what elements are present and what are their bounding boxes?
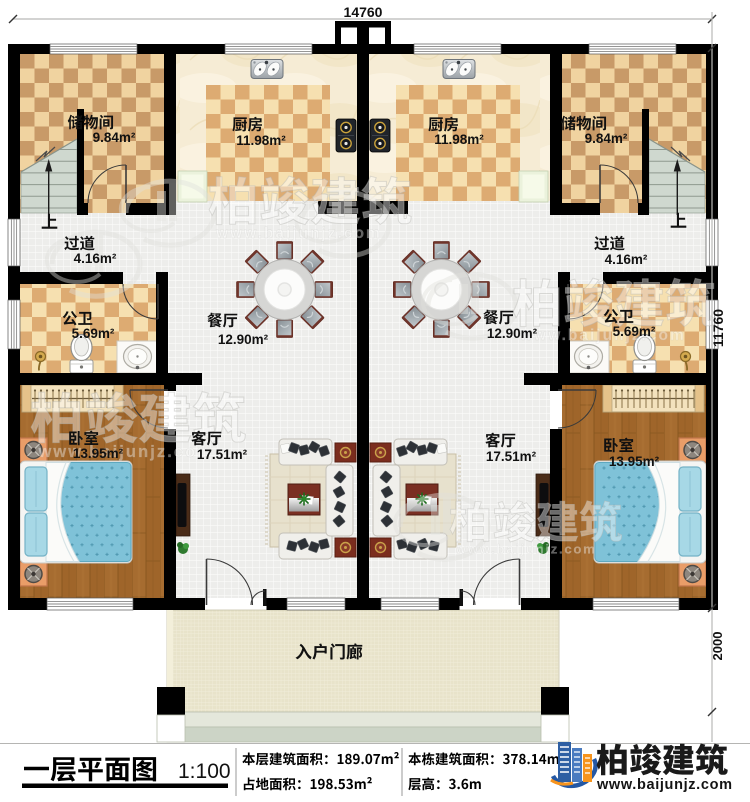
svg-text:4.16m²: 4.16m²: [605, 252, 648, 267]
svg-text:17.51m²: 17.51m²: [197, 447, 248, 462]
svg-text:13.95m²: 13.95m²: [609, 454, 660, 469]
svg-text:2000: 2000: [710, 632, 725, 661]
svg-text:9.84m²: 9.84m²: [93, 130, 136, 145]
svg-text:11760: 11760: [710, 309, 726, 347]
svg-text:5.69m²: 5.69m²: [72, 326, 115, 341]
svg-text:4.16m²: 4.16m²: [74, 251, 117, 266]
svg-text:11.98m²: 11.98m²: [236, 133, 286, 148]
svg-text:www.baijunjz.com: www.baijunjz.com: [596, 777, 733, 793]
svg-text:11.98m²: 11.98m²: [434, 132, 484, 147]
svg-text:12.90m²: 12.90m²: [487, 326, 538, 341]
svg-text:14760: 14760: [344, 4, 383, 20]
svg-text:1:100: 1:100: [178, 760, 231, 783]
svg-text:9.84m²: 9.84m²: [585, 131, 628, 146]
svg-text:13.95m²: 13.95m²: [73, 446, 124, 461]
svg-text:12.90m²: 12.90m²: [218, 332, 269, 347]
svg-text:5.69m²: 5.69m²: [613, 324, 656, 339]
svg-text:17.51m²: 17.51m²: [486, 449, 537, 464]
